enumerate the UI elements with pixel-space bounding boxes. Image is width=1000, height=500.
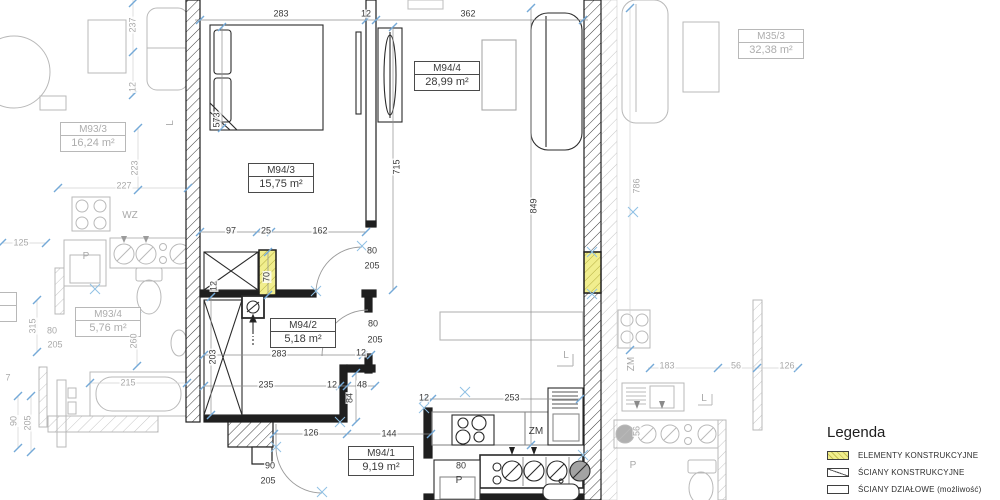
structural-column bbox=[259, 250, 276, 295]
partition-bedroom-living bbox=[366, 0, 376, 227]
ventilation-shaft bbox=[242, 296, 264, 345]
partition-walls-swatch-icon bbox=[827, 485, 849, 494]
fridge bbox=[548, 388, 583, 445]
sofa bbox=[622, 0, 668, 123]
door-arc-bedroom bbox=[316, 247, 362, 293]
arrow bbox=[121, 236, 127, 243]
toilet bbox=[688, 460, 716, 500]
neighbor-apartment-right bbox=[601, 0, 798, 500]
mirror-strip bbox=[356, 32, 361, 114]
wall bbox=[39, 367, 47, 427]
structural-elements-swatch-icon bbox=[827, 451, 849, 460]
wall bbox=[362, 290, 376, 297]
cabinet bbox=[40, 96, 66, 110]
legend-item-partition-walls: ŚCIANY DZIAŁOWE (możliwość) bbox=[827, 485, 999, 494]
wall bbox=[204, 415, 340, 422]
sideboard bbox=[440, 312, 583, 340]
stove bbox=[452, 415, 494, 445]
structural-columns bbox=[259, 250, 601, 295]
arrow bbox=[143, 236, 149, 243]
wall bbox=[48, 416, 158, 432]
stove bbox=[72, 197, 110, 231]
washing-machine bbox=[434, 460, 480, 500]
structural-walls-swatch-icon bbox=[827, 468, 849, 477]
wall-east bbox=[584, 0, 601, 252]
table bbox=[88, 20, 126, 73]
wall bbox=[347, 365, 375, 372]
washbasin bbox=[171, 330, 187, 356]
table bbox=[683, 22, 719, 92]
shelf bbox=[408, 0, 443, 9]
structural-column bbox=[584, 252, 601, 293]
wall-tab bbox=[252, 447, 272, 464]
stove bbox=[618, 310, 650, 348]
door-arc-hall bbox=[322, 310, 368, 356]
fridge-mark bbox=[557, 354, 573, 366]
legend-title: Legenda bbox=[827, 424, 999, 441]
floor-plan-page: M94/315,75 m²M94/428,99 m²M94/25,18 m²M9… bbox=[0, 0, 1000, 500]
sofa bbox=[147, 8, 188, 90]
bathtub bbox=[90, 372, 187, 416]
wardrobe-mirror bbox=[378, 28, 402, 122]
kitchen-counter-sinks bbox=[110, 238, 190, 268]
closet-x-tall bbox=[204, 300, 242, 415]
legend-item-structural-elements: ELEMENTY KONSTRUKCYJNE bbox=[827, 451, 999, 460]
closet-x bbox=[204, 252, 258, 290]
arrow bbox=[634, 401, 640, 409]
bed bbox=[210, 25, 323, 130]
legend-item-structural-walls: ŚCIANY KONSTRUKCYJNE bbox=[827, 468, 999, 477]
fridge-cabinet bbox=[622, 383, 684, 411]
reference-crosses bbox=[90, 207, 638, 497]
wall bbox=[718, 420, 726, 500]
wall bbox=[55, 268, 64, 314]
neighbor-apartment-left bbox=[0, 0, 190, 452]
arrow bbox=[509, 447, 515, 455]
door-arc-entrance bbox=[276, 447, 322, 493]
wall-fixtures bbox=[57, 380, 76, 447]
counter-sinks bbox=[614, 420, 718, 448]
dimension-lines-gray bbox=[2, 0, 190, 452]
wall-west bbox=[186, 0, 200, 422]
fridge-mark bbox=[698, 394, 712, 405]
legend: Legenda ELEMENTY KONSTRUKCYJNE ŚCIANY KO… bbox=[827, 424, 999, 500]
wall-kitchen-west bbox=[424, 408, 432, 458]
bathroom-counter-basins bbox=[480, 455, 590, 488]
toilet bbox=[136, 268, 162, 314]
washing-machine bbox=[64, 240, 106, 286]
sofa bbox=[531, 13, 582, 150]
dining-table bbox=[0, 36, 50, 108]
wall bbox=[340, 365, 347, 422]
coffee-table bbox=[482, 40, 516, 110]
arrow bbox=[531, 447, 537, 455]
dimension-lines-gray bbox=[630, 8, 798, 368]
party-wall bbox=[601, 0, 617, 500]
wall-block bbox=[228, 422, 273, 447]
